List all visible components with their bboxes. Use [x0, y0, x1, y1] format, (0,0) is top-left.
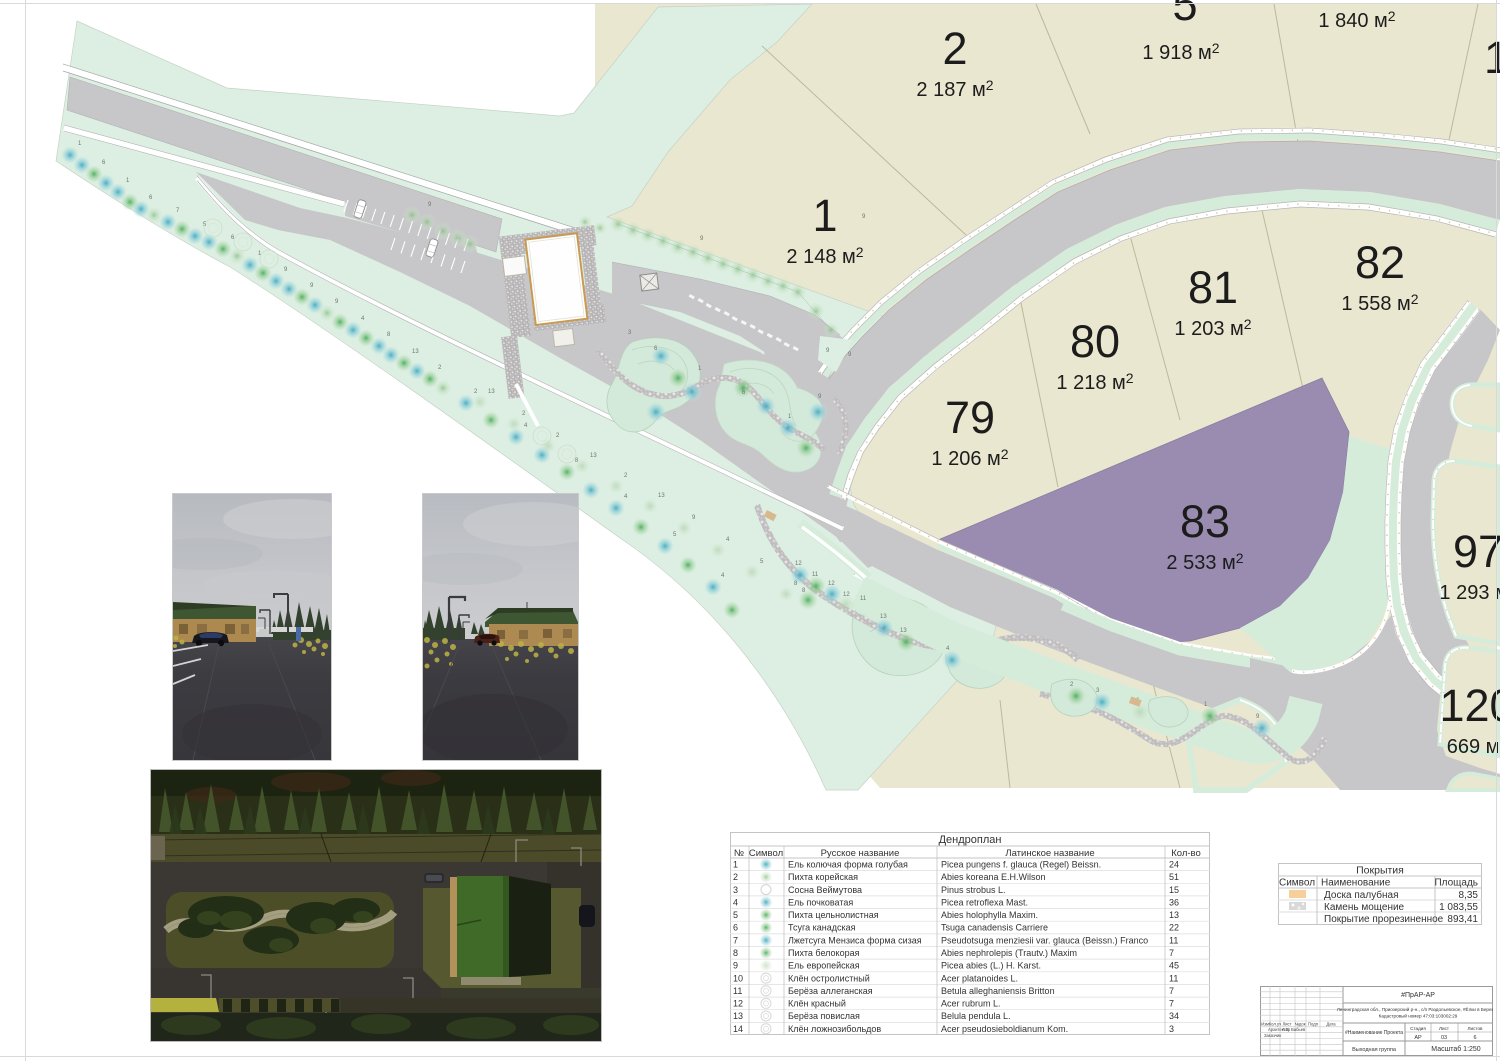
svg-text:24: 24	[1169, 860, 1179, 870]
svg-text:14: 14	[733, 1024, 743, 1034]
svg-text:№док: №док	[1294, 1021, 1305, 1026]
svg-text:Клён ложнозибольдов: Клён ложнозибольдов	[788, 1024, 881, 1034]
svg-text:Кадастровый номер 47:03:103002: Кадастровый номер 47:03:103002:29	[1379, 1013, 1458, 1019]
svg-text:80: 80	[1070, 316, 1120, 367]
svg-text:Стадия: Стадия	[1410, 1026, 1426, 1031]
svg-text:Дата: Дата	[1326, 1021, 1336, 1026]
svg-text:Ель европейская: Ель европейская	[788, 961, 860, 971]
svg-text:4: 4	[733, 898, 738, 908]
svg-text:Берёза повислая: Берёза повислая	[788, 1011, 860, 1021]
svg-text:Подп: Подп	[1308, 1021, 1318, 1026]
svg-text:Русское название: Русское название	[821, 848, 900, 859]
svg-text:Picea abies (L.) H. Karst.: Picea abies (L.) H. Karst.	[941, 961, 1041, 971]
svg-text:Pseudotsuga menziesii var. gla: Pseudotsuga menziesii var. glauca (Beiss…	[941, 935, 1148, 945]
svg-text:Клён остролистный: Клён остролистный	[788, 973, 870, 983]
svg-text:13: 13	[900, 628, 907, 634]
svg-text:8: 8	[733, 948, 738, 958]
svg-text:1 203 м2: 1 203 м2	[1174, 316, 1251, 340]
svg-text:9: 9	[733, 961, 738, 971]
svg-text:03: 03	[1441, 1035, 1447, 1041]
svg-text:Тсуга канадская: Тсуга канадская	[788, 923, 856, 933]
svg-text:13: 13	[880, 614, 887, 620]
svg-text:Acer pseudosieboldianum Kom.: Acer pseudosieboldianum Kom.	[941, 1024, 1068, 1034]
svg-text:Abies holophylla Maxim.: Abies holophylla Maxim.	[941, 910, 1038, 920]
svg-text:Кол-во: Кол-во	[1171, 848, 1201, 859]
svg-text:Клён красный: Клён красный	[788, 999, 846, 1009]
svg-text:Символ: Символ	[749, 848, 783, 859]
svg-text:АР: АР	[1414, 1035, 1422, 1041]
svg-text:1 840 м2: 1 840 м2	[1318, 8, 1395, 32]
svg-text:Выходная группа: Выходная группа	[1352, 1047, 1397, 1053]
svg-text:Дендроплан: Дендроплан	[939, 834, 1002, 846]
svg-text:13: 13	[1169, 910, 1179, 920]
svg-text:Picea retroflexa Mast.: Picea retroflexa Mast.	[941, 898, 1028, 908]
svg-text:Берёза аллеганская: Берёза аллеганская	[788, 986, 873, 996]
svg-text:Belula pendula L.: Belula pendula L.	[941, 1011, 1011, 1021]
svg-text:7: 7	[1169, 986, 1174, 996]
svg-text:2: 2	[942, 23, 967, 74]
svg-text:13: 13	[733, 1011, 743, 1021]
svg-text:81: 81	[1188, 262, 1238, 313]
svg-text:12: 12	[795, 561, 802, 567]
svg-text:2 148 м2: 2 148 м2	[786, 244, 863, 268]
svg-text:893,41: 893,41	[1447, 914, 1478, 925]
svg-text:13: 13	[488, 389, 495, 395]
svg-text:82: 82	[1355, 237, 1405, 288]
svg-text:1 558 м2: 1 558 м2	[1341, 291, 1418, 315]
svg-text:Пихта белокорая: Пихта белокорая	[788, 948, 860, 958]
svg-text:6: 6	[733, 923, 738, 933]
svg-text:Латинское название: Латинское название	[1005, 848, 1094, 859]
svg-text:Пихта цельнолистная: Пихта цельнолистная	[788, 910, 879, 920]
svg-text:11: 11	[860, 596, 867, 602]
svg-text:Площадь: Площадь	[1434, 878, 1478, 889]
svg-text:1 918 м2: 1 918 м2	[1142, 40, 1219, 64]
svg-text:13: 13	[590, 453, 597, 459]
svg-text:15: 15	[1169, 885, 1179, 895]
svg-text:Acer rubrum L.: Acer rubrum L.	[941, 999, 1001, 1009]
svg-text:83: 83	[1180, 496, 1230, 547]
svg-text:11: 11	[1169, 935, 1178, 945]
svg-text:1: 1	[812, 190, 837, 241]
svg-text:1 218 м2: 1 218 м2	[1056, 370, 1133, 394]
svg-text:А.В. Бабьев: А.В. Бабьев	[1282, 1027, 1306, 1032]
svg-text:Acer platanoides L.: Acer platanoides L.	[941, 973, 1018, 983]
svg-text:3: 3	[733, 885, 738, 895]
svg-text:Лист: Лист	[1282, 1021, 1291, 1026]
svg-text:1 083,55: 1 083,55	[1439, 902, 1478, 913]
svg-text:13: 13	[658, 493, 665, 499]
svg-text:12: 12	[733, 999, 743, 1009]
svg-text:Лист: Лист	[1439, 1026, 1450, 1031]
svg-text:45: 45	[1169, 961, 1179, 971]
svg-text:5: 5	[1172, 0, 1197, 30]
svg-text:Покрытие прорезиненное: Покрытие прорезиненное	[1324, 914, 1444, 925]
svg-text:Заказчик: Заказчик	[1264, 1033, 1281, 1038]
svg-text:Пихта корейская: Пихта корейская	[788, 872, 858, 882]
svg-text:1 5: 1 5	[1484, 32, 1500, 83]
svg-text:13: 13	[412, 349, 419, 355]
svg-text:Betula alleghaniensis Britton: Betula alleghaniensis Britton	[941, 986, 1055, 996]
svg-text:Камень мощение: Камень мощение	[1324, 902, 1405, 913]
svg-text:7: 7	[1169, 999, 1174, 1009]
svg-text:Picea pungens f. glauca (Regel: Picea pungens f. glauca (Regel) Beissn.	[941, 860, 1101, 870]
svg-text:12: 12	[828, 581, 835, 587]
svg-text:11: 11	[812, 572, 819, 578]
svg-text:1 293 м2: 1 293 м2	[1439, 580, 1500, 604]
svg-text:Наименование: Наименование	[1321, 878, 1391, 889]
svg-text:11: 11	[1169, 973, 1178, 983]
svg-text:Листов: Листов	[1468, 1026, 1483, 1031]
svg-text:2 533 м2: 2 533 м2	[1166, 550, 1243, 574]
svg-text:Символ: Символ	[1279, 878, 1315, 889]
svg-text:51: 51	[1169, 872, 1179, 882]
svg-text:Ленинградская обл., Приозерски: Ленинградская обл., Приозерский р-н., с/…	[1337, 1006, 1493, 1012]
svg-text:Ель почковатая: Ель почковатая	[788, 898, 853, 908]
svg-text:Abies koreana E.H.Wilson: Abies koreana E.H.Wilson	[941, 872, 1046, 882]
svg-text:34: 34	[1169, 1011, 1179, 1021]
svg-text:8,35: 8,35	[1459, 890, 1479, 901]
svg-text:97: 97	[1453, 526, 1500, 577]
svg-text:Ель колючая форма голубая: Ель колючая форма голубая	[788, 860, 908, 870]
svg-text:6: 6	[1473, 1035, 1476, 1041]
svg-text:Pinus strobus L.: Pinus strobus L.	[941, 885, 1006, 895]
svg-text:Покрытия: Покрытия	[1356, 865, 1404, 877]
svg-text:669 м2: 669 м2	[1447, 734, 1500, 758]
svg-text:11: 11	[733, 986, 742, 996]
svg-text:Tsuga canadensis Carriere: Tsuga canadensis Carriere	[941, 923, 1048, 933]
svg-text:2: 2	[733, 872, 738, 882]
svg-text:12: 12	[843, 592, 850, 598]
svg-text:22: 22	[1169, 923, 1179, 933]
svg-text:#ПрАР-АР: #ПрАР-АР	[1401, 992, 1435, 999]
svg-text:2 187 м2: 2 187 м2	[916, 77, 993, 101]
svg-text:№: №	[734, 848, 744, 859]
svg-text:1: 1	[733, 860, 738, 870]
svg-text:3: 3	[1169, 1024, 1174, 1034]
svg-text:Лжетсуга Мензиса форма сизая: Лжетсуга Мензиса форма сизая	[788, 935, 922, 945]
svg-text:Сосна Веймутова: Сосна Веймутова	[788, 885, 862, 895]
svg-text:5: 5	[733, 910, 738, 920]
svg-text:79: 79	[945, 392, 995, 443]
svg-text:Кол.уч: Кол.уч	[1269, 1021, 1282, 1026]
svg-text:#Наименование Проекта: #Наименование Проекта	[1345, 1030, 1403, 1036]
svg-text:36: 36	[1169, 898, 1179, 908]
svg-text:7: 7	[1169, 948, 1174, 958]
svg-text:Доска палубная: Доска палубная	[1324, 889, 1399, 901]
svg-text:10: 10	[733, 973, 743, 983]
svg-text:Масштаб 1:250: Масштаб 1:250	[1431, 1045, 1481, 1053]
svg-text:1 206 м2: 1 206 м2	[931, 446, 1008, 470]
svg-text:7: 7	[733, 935, 738, 945]
svg-text:Abies nephrolepis (Trautv.) Ma: Abies nephrolepis (Trautv.) Maxim	[941, 948, 1077, 958]
svg-text:120: 120	[1439, 680, 1500, 731]
